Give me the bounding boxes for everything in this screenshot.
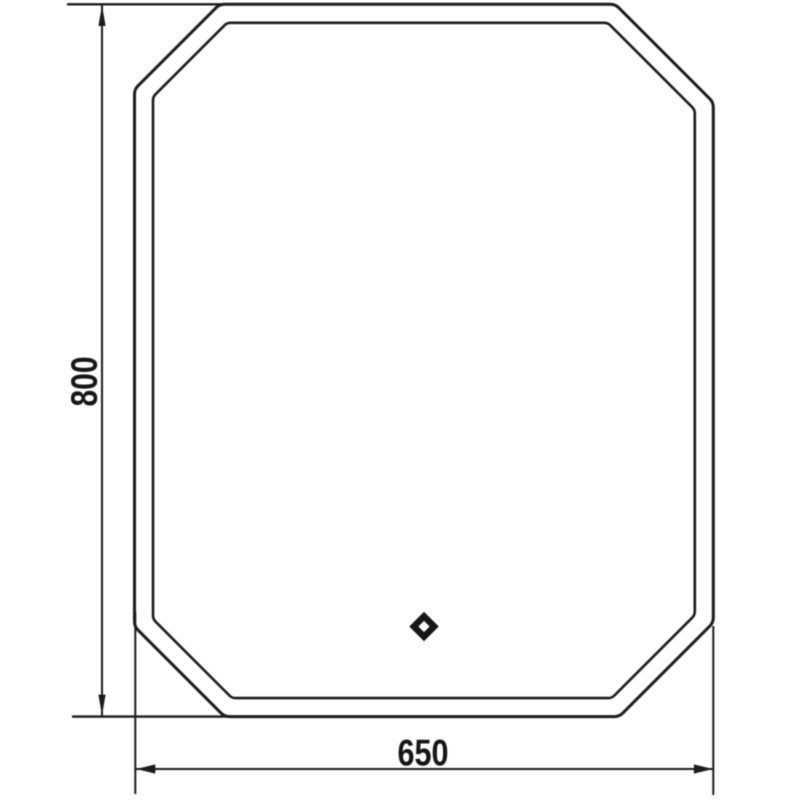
svg-text:650: 650 [398,733,449,774]
svg-text:800: 800 [64,357,105,407]
